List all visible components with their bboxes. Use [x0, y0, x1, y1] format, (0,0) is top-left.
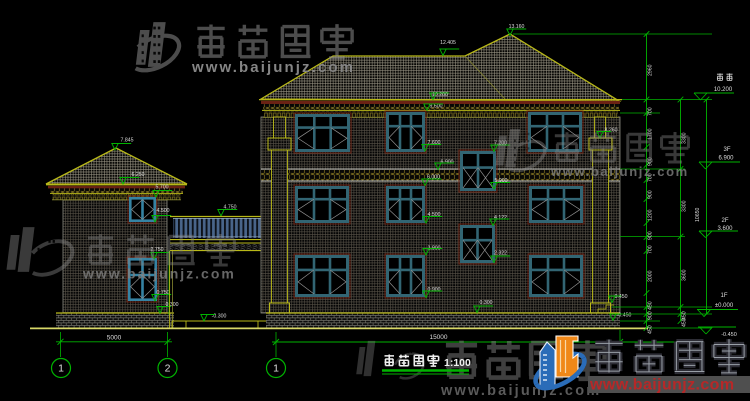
svg-text:www.baijunjz.com: www.baijunjz.com [82, 266, 236, 282]
svg-text:2: 2 [165, 363, 171, 375]
svg-text:900: 900 [648, 311, 654, 320]
svg-text:900: 900 [648, 231, 654, 240]
svg-text:-0.450: -0.450 [617, 313, 632, 319]
svg-text:10.200: 10.200 [714, 87, 733, 93]
svg-text:6.000: 6.000 [427, 175, 440, 181]
svg-text:700: 700 [648, 245, 654, 254]
svg-text:1:100: 1:100 [444, 357, 471, 369]
svg-text:900: 900 [648, 190, 654, 199]
svg-text:6.900: 6.900 [718, 156, 734, 162]
svg-text:9.500: 9.500 [430, 104, 443, 110]
svg-text:-0.450: -0.450 [721, 332, 737, 338]
svg-text:www.baijunjz.com: www.baijunjz.com [550, 164, 689, 179]
svg-text:450: 450 [648, 325, 654, 334]
svg-text:www.baijunjz.com: www.baijunjz.com [191, 59, 355, 76]
svg-text:10650: 10650 [695, 207, 701, 222]
svg-text:2000: 2000 [648, 270, 654, 282]
svg-text:0.300: 0.300 [480, 300, 493, 306]
svg-text:1: 1 [58, 363, 64, 375]
svg-text:3600: 3600 [682, 269, 688, 281]
svg-text:4.500: 4.500 [157, 208, 170, 214]
svg-text:3F: 3F [723, 147, 730, 153]
svg-text:2960: 2960 [648, 64, 654, 76]
svg-text:7.600: 7.600 [428, 140, 441, 146]
svg-text:4.500: 4.500 [428, 212, 441, 218]
svg-text:15000: 15000 [429, 334, 447, 341]
svg-text:5.700: 5.700 [156, 185, 169, 191]
svg-text:450: 450 [648, 301, 654, 310]
svg-text:0.300: 0.300 [166, 302, 179, 308]
svg-text:5000: 5000 [107, 335, 122, 342]
svg-text:2F: 2F [721, 218, 728, 224]
svg-text:www.baijunjz.com: www.baijunjz.com [589, 377, 735, 394]
svg-text:1F: 1F [720, 293, 727, 299]
svg-text:0.450: 0.450 [615, 294, 628, 300]
svg-text:1200: 1200 [648, 209, 654, 221]
svg-text:700: 700 [648, 107, 654, 116]
svg-text:www.baijunjz.com: www.baijunjz.com [440, 383, 601, 399]
svg-text:0.900: 0.900 [428, 287, 441, 293]
svg-text:7.845: 7.845 [121, 138, 134, 144]
svg-text:±0.000: ±0.000 [715, 303, 734, 309]
svg-text:3300: 3300 [682, 200, 688, 212]
svg-text:1: 1 [273, 363, 279, 375]
svg-text:450: 450 [682, 318, 688, 327]
svg-text:6.900: 6.900 [441, 160, 454, 166]
svg-text:12.405: 12.405 [440, 40, 456, 46]
svg-text:0.750: 0.750 [157, 290, 170, 296]
